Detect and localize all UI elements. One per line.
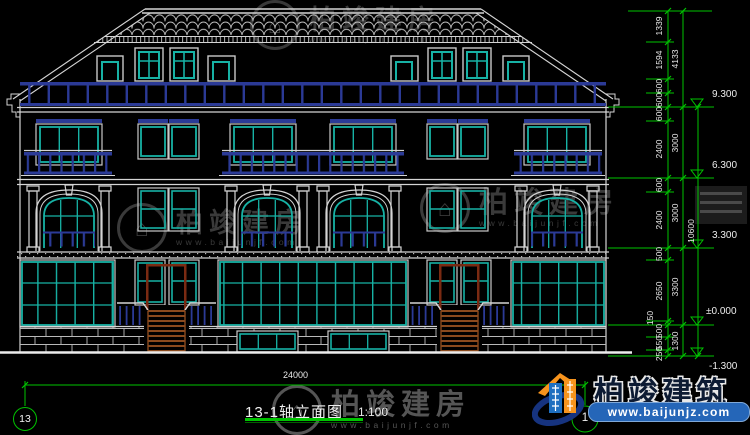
dim-major: 3000 [670, 121, 680, 165]
dim-major: 3300 [670, 265, 680, 309]
second-floor-balconies [17, 151, 609, 185]
drawing-scale: 1:100 [358, 405, 388, 419]
dim-major: 3000 [670, 191, 680, 235]
elevation-label: 9.300 [712, 89, 737, 100]
baijun-logo-icon [532, 367, 594, 429]
cornice-band [17, 252, 609, 258]
grid-bubble-13: 13 [14, 413, 36, 425]
elevation-label: 3.300 [712, 230, 737, 241]
arched-window-bays [27, 185, 599, 252]
dim-major: 4133 [670, 37, 680, 81]
company-logo: 柏竣建筑 www.baijunjz.com [528, 365, 750, 435]
elevation-label: 6.300 [712, 160, 737, 171]
elevation-label: ±0.000 [706, 306, 737, 317]
company-url: www.baijunjz.com [588, 402, 750, 422]
dim-overall-height: 10600 [686, 209, 696, 253]
attic-railing [17, 82, 609, 112]
dim-major: 1300 [670, 319, 680, 363]
ground-floor-windows [20, 260, 606, 327]
dim-chain: 2650 [654, 269, 664, 313]
cad-viewport: ⌂ 柏竣建房 www.baijunjf.com ⌂ 柏竣建房 www.baiju… [0, 0, 750, 435]
dim-total-width: 24000 [283, 370, 308, 380]
attic-windows [97, 48, 529, 81]
second-floor-lintels [36, 119, 590, 123]
title-underline-thin [245, 422, 363, 423]
title-underline [245, 418, 363, 421]
